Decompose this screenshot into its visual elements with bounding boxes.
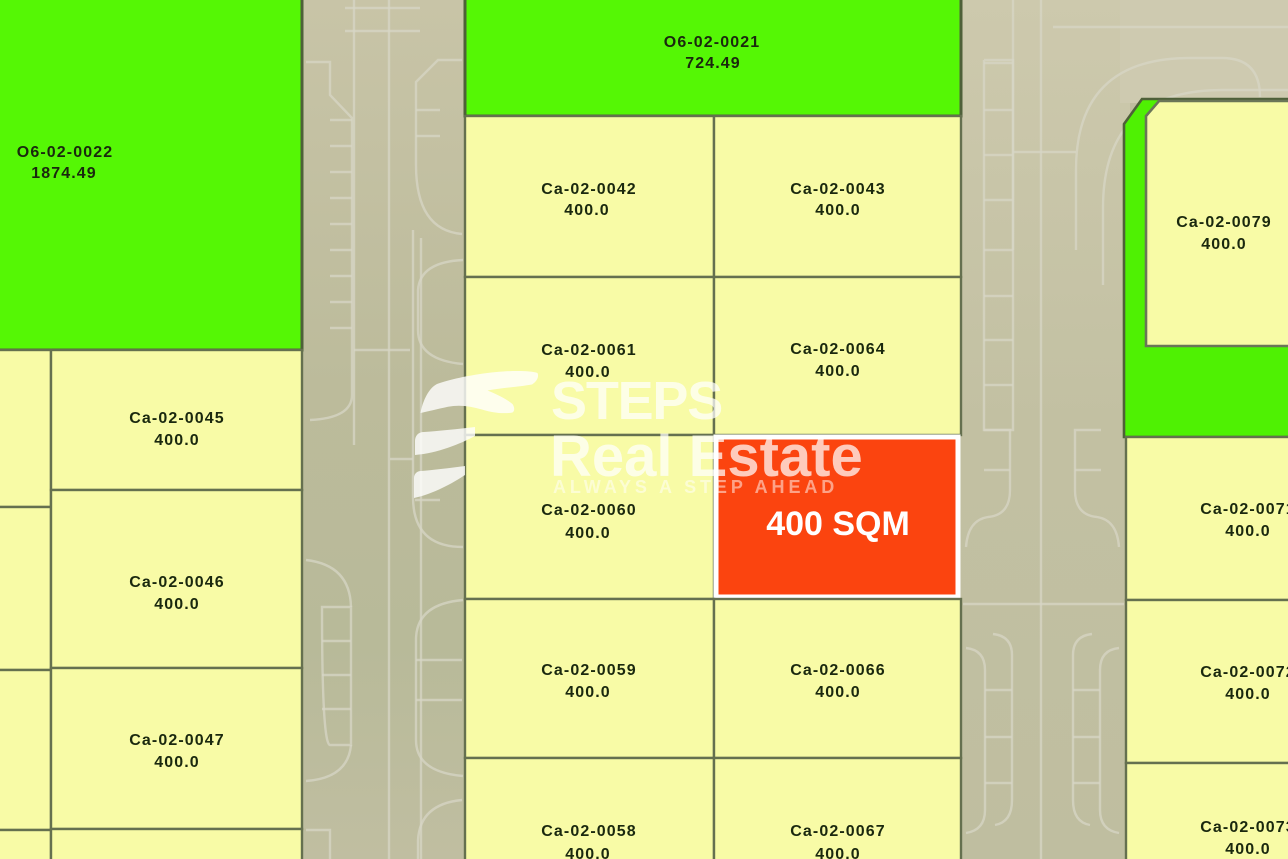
svg-text:400.0: 400.0 xyxy=(1225,523,1271,540)
svg-text:400.0: 400.0 xyxy=(565,525,611,542)
svg-text:400.0: 400.0 xyxy=(815,202,861,219)
svg-text:400.0: 400.0 xyxy=(154,596,200,613)
svg-text:Ca-02-0047: Ca-02-0047 xyxy=(129,732,225,749)
svg-text:400.0: 400.0 xyxy=(815,684,861,701)
svg-text:400 SQM: 400 SQM xyxy=(766,505,910,543)
svg-text:Ca-02-0079: Ca-02-0079 xyxy=(1176,214,1272,231)
svg-text:Ca-02-0067: Ca-02-0067 xyxy=(790,823,886,840)
svg-text:400.0: 400.0 xyxy=(1225,841,1271,858)
svg-text:O6-02-0022: O6-02-0022 xyxy=(17,144,113,161)
svg-text:400.0: 400.0 xyxy=(154,754,200,771)
svg-text:400.0: 400.0 xyxy=(1201,236,1247,253)
svg-text:Ca-02-0060: Ca-02-0060 xyxy=(541,502,637,519)
svg-text:Ca-02-0066: Ca-02-0066 xyxy=(790,662,886,679)
svg-text:Ca-02-0043: Ca-02-0043 xyxy=(790,181,886,198)
svg-text:Ca-02-0061: Ca-02-0061 xyxy=(541,342,637,359)
svg-text:400.0: 400.0 xyxy=(1225,686,1271,703)
svg-text:Ca-02-0073: Ca-02-0073 xyxy=(1200,819,1288,836)
svg-text:Ca-02-0046: Ca-02-0046 xyxy=(129,574,225,591)
svg-text:ALWAYS A STEP AHEAD: ALWAYS A STEP AHEAD xyxy=(553,477,838,497)
svg-text:Ca-02-0042: Ca-02-0042 xyxy=(541,181,637,198)
svg-text:724.49: 724.49 xyxy=(685,55,741,72)
svg-text:Ca-02-0071: Ca-02-0071 xyxy=(1200,501,1288,518)
svg-text:400.0: 400.0 xyxy=(564,202,610,219)
svg-text:Ca-02-0045: Ca-02-0045 xyxy=(129,410,225,427)
svg-text:1874.49: 1874.49 xyxy=(31,165,97,182)
svg-text:400.0: 400.0 xyxy=(565,846,611,859)
svg-text:400.0: 400.0 xyxy=(815,363,861,380)
svg-text:Ca-02-0058: Ca-02-0058 xyxy=(541,823,637,840)
svg-text:STEPS: STEPS xyxy=(551,371,722,431)
svg-text:400.0: 400.0 xyxy=(815,846,861,859)
svg-text:O6-02-0021: O6-02-0021 xyxy=(664,34,760,51)
svg-text:400.0: 400.0 xyxy=(154,432,200,449)
svg-text:Ca-02-0072: Ca-02-0072 xyxy=(1200,664,1288,681)
svg-text:400.0: 400.0 xyxy=(565,684,611,701)
svg-text:Ca-02-0064: Ca-02-0064 xyxy=(790,341,886,358)
svg-text:Ca-02-0059: Ca-02-0059 xyxy=(541,662,637,679)
